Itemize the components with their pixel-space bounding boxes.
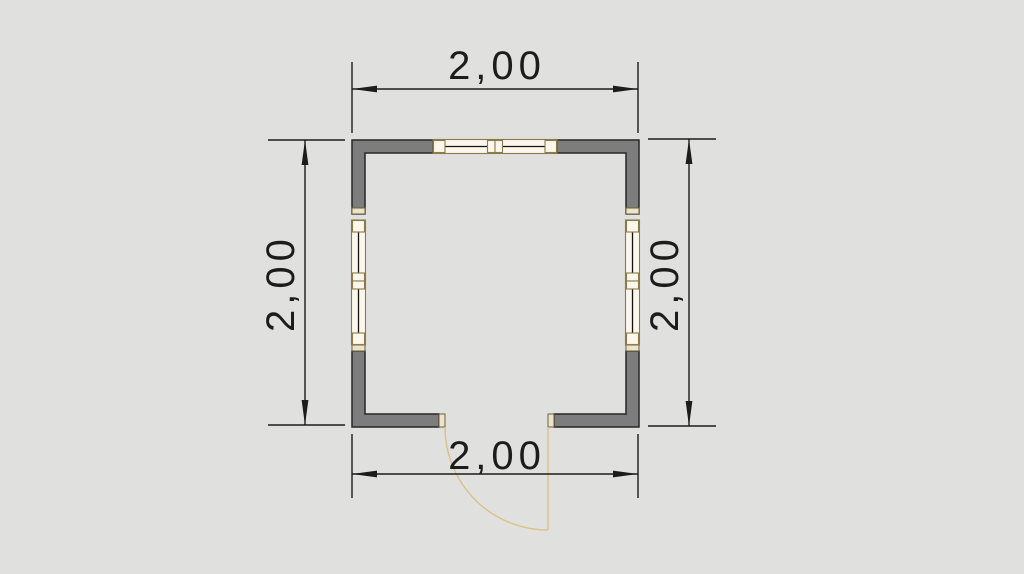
dimension-label: 2,00	[448, 44, 546, 88]
door-jamb-cap-left	[439, 414, 445, 427]
window-left	[352, 220, 366, 345]
dimension-label: 2,00	[259, 234, 303, 332]
window-top	[433, 140, 557, 154]
wall-cap	[626, 208, 639, 214]
window-mullion	[434, 141, 446, 153]
window-mullion	[495, 141, 503, 153]
wall-cap	[352, 345, 365, 351]
window-mullion	[353, 221, 365, 233]
window-mullion	[627, 221, 639, 233]
dimension-label: 2,00	[643, 234, 687, 332]
window-mullion	[353, 273, 365, 281]
window-mullion	[488, 141, 496, 153]
window-right	[626, 220, 640, 345]
wall-cap	[626, 345, 639, 351]
cad-canvas: 2,00 2,00 2,00 2,00	[0, 0, 1024, 574]
floor-plan-drawing: 2,00 2,00 2,00 2,00	[0, 0, 1024, 574]
window-mullion	[627, 281, 639, 289]
dimension-label: 2,00	[448, 434, 546, 478]
window-mullion	[545, 141, 557, 153]
window-mullion	[353, 281, 365, 289]
wall-cap	[352, 208, 365, 214]
window-mullion	[627, 273, 639, 281]
door-jamb-cap-right	[548, 414, 554, 427]
window-mullion	[353, 333, 365, 345]
window-mullion	[627, 333, 639, 345]
